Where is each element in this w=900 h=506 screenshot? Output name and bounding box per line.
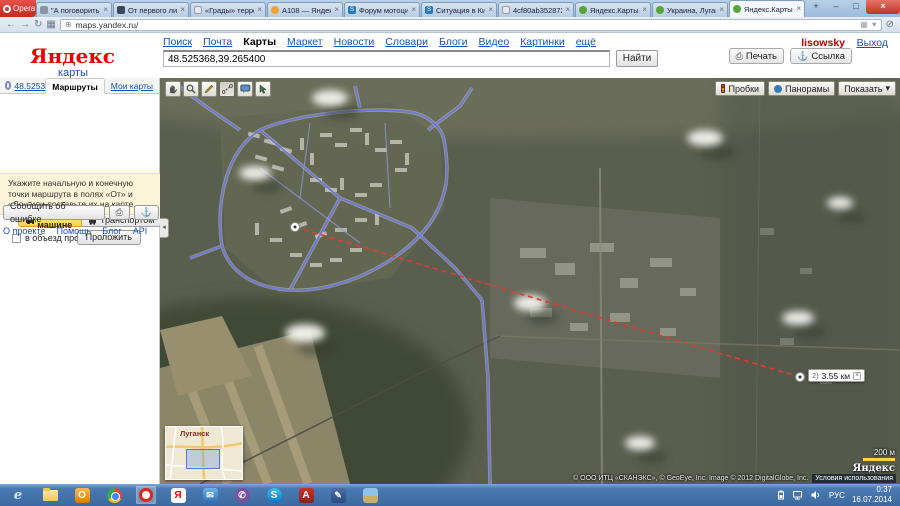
download-icon[interactable]: ⊘ (886, 20, 894, 30)
window-controls: + – □ × (806, 0, 900, 17)
maximize-button[interactable]: □ (846, 0, 866, 14)
panorama-icon (774, 85, 782, 93)
tab-ukraina-lugansk[interactable]: Украина, Луганск, ... × (652, 2, 728, 17)
url-field[interactable]: ⊕ maps.yandex.ru/ ▦ ♥ (60, 19, 882, 31)
report-error-button[interactable]: Сообщить об ошибке (3, 205, 105, 220)
acrobat-icon: A (299, 488, 314, 503)
printer-icon: ⎙ (736, 52, 743, 61)
tab-my-maps[interactable]: Мои карты (105, 80, 159, 92)
logout-link[interactable]: Выход (857, 37, 888, 49)
tab-close-icon[interactable]: × (565, 6, 570, 14)
desktop: Opera "А поговорить?" (О... × От первого… (0, 0, 900, 506)
sidebar-collapse-handle[interactable]: ◂ (160, 218, 169, 238)
taskbar-image-viewer[interactable] (360, 486, 380, 504)
taskbar-photo-editor[interactable]: ✎ (328, 486, 348, 504)
taskbar-mail[interactable]: ✉ (200, 486, 220, 504)
taskbar-file-explorer[interactable] (40, 486, 60, 504)
scale-bar: 200 м (863, 448, 895, 461)
tab-yandex-maps-active[interactable]: Яндекс.Карты × (729, 0, 805, 17)
system-tray: РУС 0:37 16.07.2014 (777, 485, 900, 504)
mail-icon: ✉ (203, 488, 218, 503)
cursor-arrow-icon (258, 84, 268, 94)
opera-menu-button[interactable]: Opera (0, 0, 36, 17)
yandex-maps-icon (579, 6, 587, 14)
tab-a108[interactable]: А108 — Яндекс нав... × (267, 2, 343, 17)
tab-close-icon[interactable]: × (796, 5, 801, 13)
taskbar-opera[interactable] (136, 486, 156, 504)
url-text[interactable]: maps.yandex.ru/ (76, 20, 857, 30)
close-window-button[interactable]: × (866, 0, 900, 14)
nav-maps[interactable]: Карты (243, 36, 276, 48)
chevron-down-icon: ▾ (885, 83, 890, 94)
forum-icon: S (348, 6, 356, 14)
show-layers-button[interactable]: Показать ▾ (838, 81, 896, 96)
ruler-tool-button[interactable] (219, 81, 235, 97)
page-icon (117, 6, 125, 14)
nav-more[interactable]: ещё (576, 36, 596, 48)
routes-sidebar: 48.525368,39.26 Маршруты Мои карты А Б Н… (0, 78, 160, 484)
yandex-header: Яндекс карты Поиск Почта Карты Маркет Но… (0, 33, 900, 78)
select-tool-button[interactable] (255, 81, 271, 97)
printer-icon: ⎙ (116, 208, 123, 217)
ruler-close-icon[interactable]: × (853, 372, 861, 380)
tab-close-icon[interactable]: × (642, 6, 647, 14)
tab-ot-pervogo-lica[interactable]: От первого лица - ... × (113, 2, 189, 17)
traffic-light-icon (721, 84, 725, 93)
tab-close-icon[interactable]: × (719, 6, 724, 14)
ruler-point-number: 2) (812, 371, 819, 380)
forward-icon[interactable]: → (20, 20, 30, 30)
inset-viewport[interactable] (186, 449, 220, 469)
grid-icon[interactable]: ▦ (860, 20, 868, 29)
speed-dial-icon[interactable]: ▦ (46, 20, 55, 30)
opera-icon (139, 488, 153, 502)
magnifier-icon (186, 84, 196, 94)
yandex-maps-icon (733, 5, 741, 13)
scale-label: 200 м (863, 448, 895, 457)
tab-routes[interactable]: Маршруты (45, 78, 105, 94)
map-toolbar (165, 81, 271, 97)
taskbar-yandex-browser[interactable]: Я (168, 486, 188, 504)
copyright-text: © ООО ИТЦ «СКАНЭКС», © GeoEye, Inc. Imag… (573, 475, 808, 482)
sidebar-tabs: 48.525368,39.26 Маршруты Мои карты (0, 78, 159, 94)
zoom-tool-button[interactable] (183, 81, 199, 97)
tab-grady[interactable]: «Грады» террорист... × (190, 2, 266, 17)
location-icon (5, 81, 11, 90)
taskbar-chrome[interactable] (104, 486, 124, 504)
satellite-map[interactable]: Пробки Панорамы Показать ▾ ◂ 2) 3.55 км … (160, 78, 900, 484)
clock[interactable]: 0:37 16.07.2014 (852, 485, 892, 504)
skype-icon: S (267, 488, 282, 503)
forum-icon: S (425, 6, 433, 14)
person-icon (40, 6, 48, 14)
anchor-icon: ⚓ (797, 52, 808, 61)
opera-menu-label: Opera (13, 4, 35, 13)
search-input[interactable] (163, 50, 610, 67)
document-icon (194, 6, 202, 14)
ruler-distance-value: 3.55 км (822, 371, 850, 381)
pan-tool-button[interactable] (165, 81, 181, 97)
bookmark-heart-icon[interactable]: ♥ (872, 20, 877, 29)
ruler-distance-label: 2) 3.55 км × (808, 369, 865, 382)
satellite-imagery (160, 78, 900, 484)
services-nav: Поиск Почта Карты Маркет Новости Словари… (163, 36, 596, 48)
battery-icon[interactable] (777, 490, 786, 500)
ruler-icon (222, 84, 233, 94)
browser-tab-bar: Opera "А поговорить?" (О... × От первого… (0, 0, 900, 17)
coords-tab[interactable]: 48.525368,39.26 (14, 81, 45, 91)
pencil-icon (204, 84, 214, 94)
clock-time: 0:37 (852, 485, 892, 495)
map-copyright: © ООО ИТЦ «СКАНЭКС», © GeoEye, Inc. Imag… (573, 474, 896, 483)
network-icon[interactable] (793, 490, 804, 500)
print-button[interactable]: ⎙ Печать (729, 48, 784, 64)
tab-situaciya-kiev[interactable]: S Ситуация в Киеве и... × (421, 2, 497, 17)
language-indicator[interactable]: РУС (829, 491, 845, 500)
tab-strip: "А поговорить?" (О... × От первого лица … (36, 0, 806, 17)
nav-news[interactable]: Новости (334, 36, 375, 48)
map-layer-controls: Пробки Панорамы Показать ▾ (715, 81, 896, 96)
find-button[interactable]: Найти (616, 50, 658, 67)
api-link[interactable]: API (133, 226, 148, 236)
nav-market[interactable]: Маркет (287, 36, 323, 48)
tab-close-icon[interactable]: × (103, 6, 108, 14)
maps-orange-icon (271, 6, 279, 14)
yandex-browser-icon: Я (171, 488, 186, 503)
about-link[interactable]: О проекте (3, 226, 45, 236)
ie-icon: e (14, 489, 22, 502)
sidebar-footer-links: О проекте Помощь Блог API (3, 226, 147, 236)
traffic-button[interactable]: Пробки (715, 81, 765, 96)
overview-inset-map[interactable]: Луганск (165, 426, 243, 480)
nav-blogs[interactable]: Блоги (439, 36, 468, 48)
tab-close-icon[interactable]: × (257, 6, 262, 14)
nav-images[interactable]: Картинки (520, 36, 565, 48)
viber-icon: ✆ (235, 488, 250, 503)
outlook-icon: O (75, 488, 90, 503)
nav-video[interactable]: Видео (479, 36, 510, 48)
yandex-map-watermark: Яндекс (853, 463, 895, 474)
tab-yandex-maps-1[interactable]: Яндекс.Карты × (575, 2, 651, 17)
tab-close-icon[interactable]: × (488, 6, 493, 14)
taskbar-viber[interactable]: ✆ (232, 486, 252, 504)
yandex-logo[interactable]: Яндекс карты (30, 46, 115, 80)
terms-link[interactable]: Условия использования (812, 474, 896, 483)
tab-forum-moto[interactable]: S Форум мотоцикли... × (344, 2, 420, 17)
document-icon (502, 6, 510, 14)
taskbar-outlook[interactable]: O (72, 486, 92, 504)
sidebar-actions: Сообщить об ошибке ⎙ ⚓ (3, 205, 159, 220)
nav-mail[interactable]: Почта (203, 36, 232, 48)
back-icon[interactable]: ← (6, 20, 16, 30)
anchor-icon: ⚓ (141, 208, 152, 217)
opera-logo-icon (3, 5, 11, 13)
link-map-button[interactable]: ⚓ (134, 205, 159, 220)
chrome-icon (107, 488, 122, 503)
inset-city-label: Луганск (180, 429, 209, 438)
address-bar: ← → ↻ ▦ ⊕ maps.yandex.ru/ ▦ ♥ ⊘ (0, 17, 900, 33)
new-tab-button[interactable]: + (806, 0, 826, 14)
volume-icon[interactable] (811, 490, 822, 500)
tab-close-icon[interactable]: × (411, 6, 416, 14)
clock-date: 16.07.2014 (852, 495, 892, 505)
share-link-button[interactable]: ⚓ Ссылка (790, 48, 852, 64)
globe-icon: ⊕ (65, 20, 72, 29)
yandex-logo-text: Яндекс (30, 44, 115, 68)
taskbar-acrobat[interactable]: A (296, 486, 316, 504)
feedback-tool-button[interactable] (237, 81, 253, 97)
folder-icon (43, 490, 58, 501)
speech-bubble-icon (240, 84, 251, 94)
pencil-tool-button[interactable] (201, 81, 217, 97)
yandex-maps-icon (656, 6, 664, 14)
taskbar-skype[interactable]: S (264, 486, 284, 504)
help-link[interactable]: Помощь (56, 226, 91, 236)
minimize-button[interactable]: – (826, 0, 846, 14)
reload-icon[interactable]: ↻ (34, 20, 42, 30)
windows-taskbar: e O Я ✉ ✆ S A ✎ РУС 0:37 16.07.2014 (0, 484, 900, 506)
nav-dictionaries[interactable]: Словари (385, 36, 428, 48)
hand-icon (168, 84, 178, 94)
scale-ruler (863, 458, 895, 461)
nav-search[interactable]: Поиск (163, 36, 192, 48)
tab-close-icon[interactable]: × (334, 6, 339, 14)
tab-close-icon[interactable]: × (180, 6, 185, 14)
photo-editor-icon: ✎ (331, 488, 346, 503)
print-map-button[interactable]: ⎙ (109, 205, 130, 220)
tab-file[interactable]: 4cf80ab352872e8c... × (498, 2, 574, 17)
blog-link[interactable]: Блог (102, 226, 121, 236)
tab-pogovorit[interactable]: "А поговорить?" (О... × (36, 2, 112, 17)
taskbar-internet-explorer[interactable]: e (8, 486, 28, 504)
image-viewer-icon (363, 488, 378, 503)
panoramas-button[interactable]: Панорамы (768, 81, 835, 96)
